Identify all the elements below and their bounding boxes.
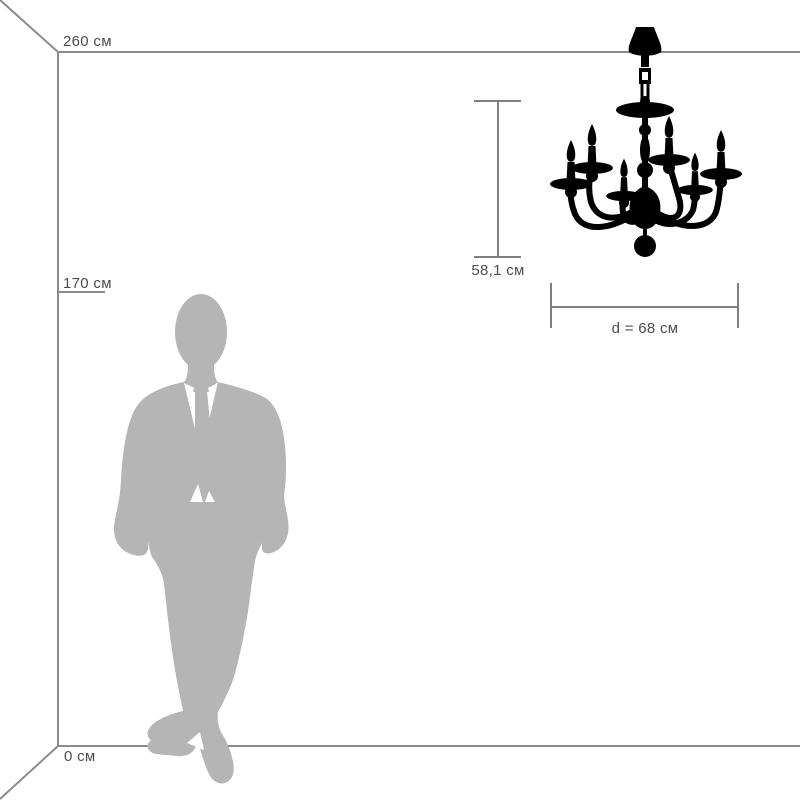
fixture-size-diagram: 260 см 170 см 0 см 58,1 см d = 68 см [0,0,800,800]
ceiling-corner-diagonal [0,0,58,52]
floor-level-label: 0 см [64,749,96,764]
man-body [114,294,289,783]
chandelier-silhouette [545,18,750,263]
person-height-label: 170 см [63,276,112,291]
ceiling-height-label: 260 см [63,34,112,49]
tie [193,383,209,392]
man-silhouette [112,291,312,791]
chandelier-body [550,27,742,257]
fixture-diameter-label: d = 68 см [595,321,695,336]
fixture-height-label: 58,1 см [458,263,538,278]
ceiling-canopy [629,27,662,56]
floor-corner-diagonal [0,746,58,799]
